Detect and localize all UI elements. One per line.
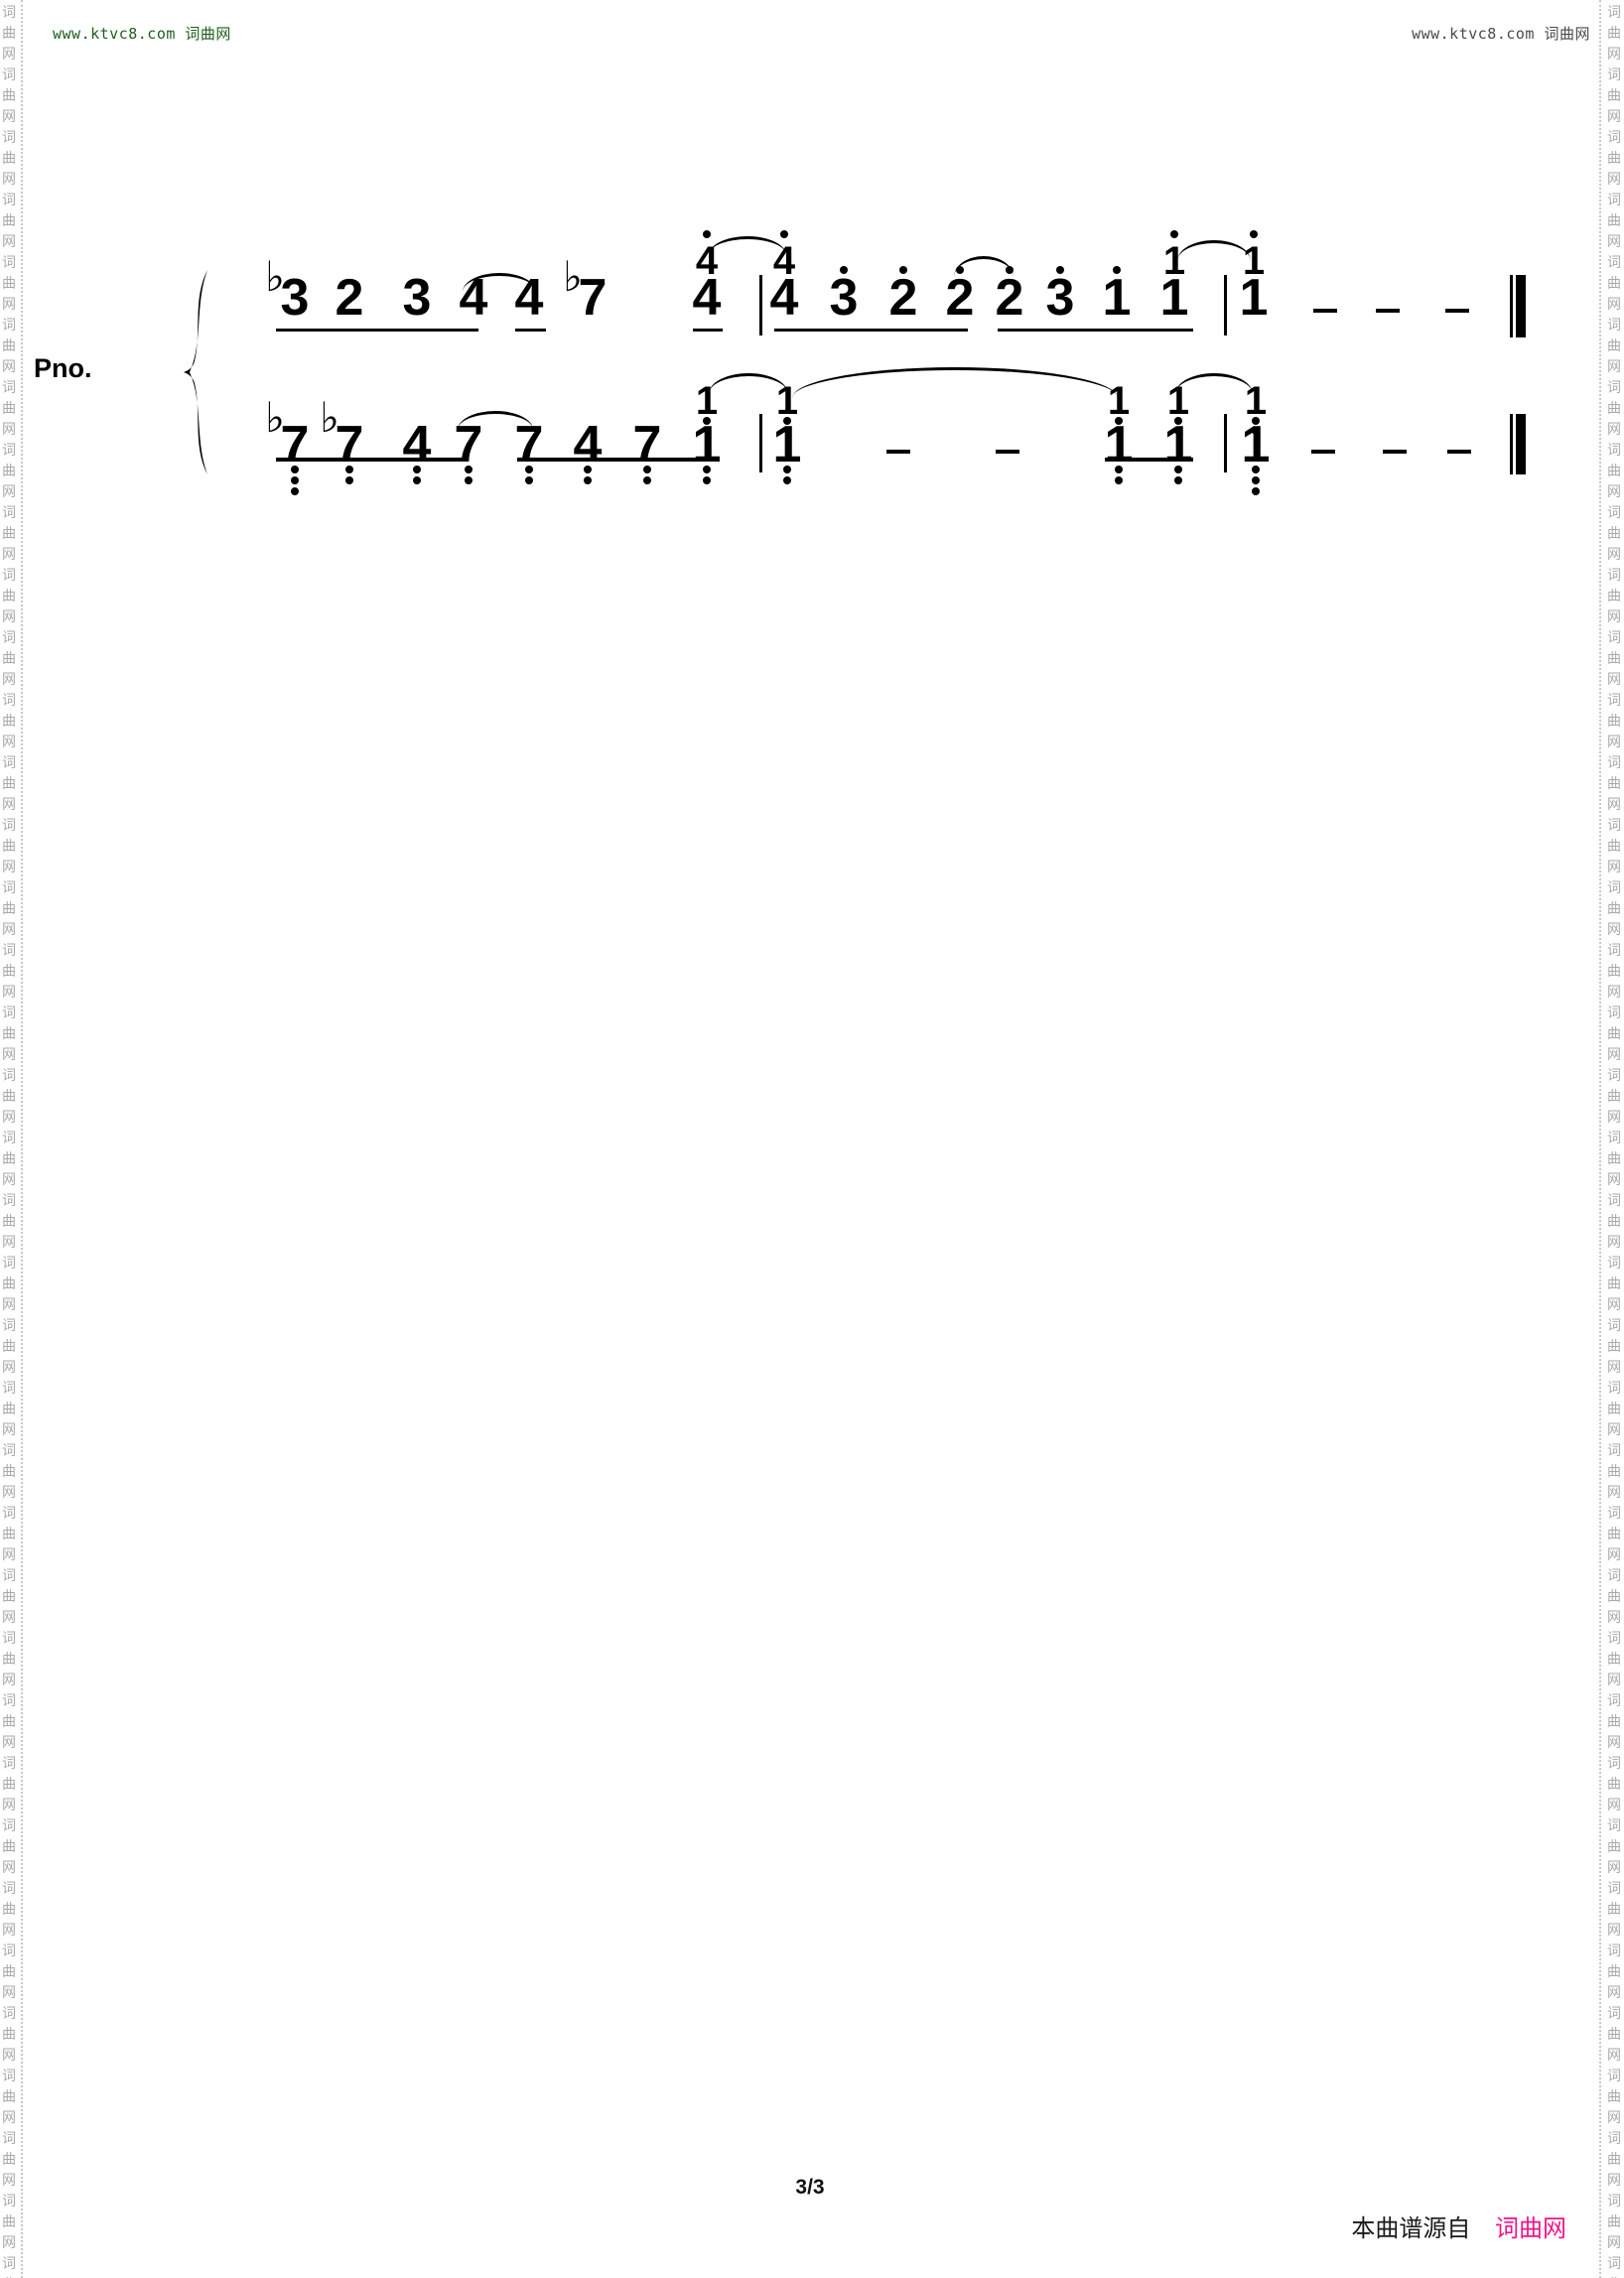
note-number: 1 <box>1237 272 1271 324</box>
octave-dot-low <box>1252 476 1260 484</box>
octave-dot-low <box>291 476 299 484</box>
slur <box>709 373 788 394</box>
barline <box>759 414 762 472</box>
octave-dot-low <box>1174 466 1182 473</box>
octave-dot-low <box>643 476 651 484</box>
octave-dot-high <box>703 230 711 238</box>
footer-brand-link[interactable]: 词曲网 <box>1495 2215 1566 2242</box>
note-number: 7 <box>630 419 664 470</box>
flat-sign: ♭ <box>265 397 279 439</box>
note-number: 4 <box>571 419 605 470</box>
note-number: 1 <box>690 419 724 470</box>
footer-source-line: 本曲谱源自 词曲网 <box>1351 2215 1566 2244</box>
page-number: 3/3 <box>754 2175 866 2200</box>
duration-dash <box>1447 450 1471 454</box>
flat-sign: ♭ <box>563 256 577 298</box>
note-number: 2 <box>943 272 977 324</box>
beam-line <box>998 329 1193 332</box>
octave-dot-low <box>1252 466 1260 473</box>
octave-dot-low <box>703 466 711 473</box>
final-barline-thick <box>1516 275 1526 337</box>
notation-layer: 3♭23447♭444432223111117♭7♭47747111111111… <box>0 0 1624 2278</box>
note-number: 1 <box>1239 419 1273 470</box>
octave-dot-low <box>345 466 353 473</box>
octave-dot-low <box>291 466 299 473</box>
note-number: 2 <box>333 272 366 324</box>
octave-dot-low <box>1115 466 1123 473</box>
beam-line <box>693 329 723 332</box>
duration-dash <box>1311 450 1335 454</box>
note-number: 2 <box>993 272 1026 324</box>
note-number: 1 <box>1102 419 1136 470</box>
octave-dot-high <box>899 266 907 274</box>
footer-source-prefix: 本曲谱源自 <box>1351 2215 1470 2242</box>
note-number: 4 <box>767 272 801 324</box>
final-barline-thick <box>1516 414 1526 474</box>
beam-line <box>276 329 478 332</box>
octave-dot-high <box>1170 230 1178 238</box>
note-number: 3 <box>400 272 434 324</box>
slur <box>1175 373 1253 394</box>
octave-dot-low <box>525 466 533 473</box>
beam-line <box>276 458 469 462</box>
barline <box>759 275 762 335</box>
note-number: 1 <box>1161 419 1195 470</box>
octave-dot-low <box>1115 476 1123 484</box>
octave-dot-low <box>465 466 473 473</box>
octave-dot-low <box>413 476 421 484</box>
final-barline-thin <box>1510 414 1513 474</box>
note-number: 4 <box>690 272 724 324</box>
slur <box>954 256 1014 277</box>
octave-dot-low <box>291 487 299 495</box>
octave-dot-low <box>1174 476 1182 484</box>
duration-dash <box>1383 450 1407 454</box>
beam-line <box>517 458 718 462</box>
barline <box>1224 275 1227 335</box>
beam-line <box>774 329 968 332</box>
octave-dot-high <box>1056 266 1064 274</box>
flat-sign: ♭ <box>320 397 334 439</box>
duration-dash <box>996 450 1019 454</box>
octave-dot-low <box>584 476 592 484</box>
beam-line <box>515 329 546 332</box>
final-barline-thin <box>1510 275 1513 337</box>
octave-dot-high <box>840 266 848 274</box>
octave-dot-low <box>783 476 791 484</box>
duration-dash <box>886 450 910 454</box>
octave-dot-low <box>1252 487 1260 495</box>
octave-dot-low <box>643 466 651 473</box>
note-number: 1 <box>770 419 804 470</box>
flat-sign: ♭ <box>265 256 279 298</box>
octave-dot-low <box>783 466 791 473</box>
octave-dot-high <box>780 230 788 238</box>
octave-dot-low <box>703 476 711 484</box>
octave-dot-high <box>1113 266 1121 274</box>
note-number: 3 <box>827 272 861 324</box>
octave-dot-low <box>584 466 592 473</box>
note-number: 2 <box>886 272 920 324</box>
slur <box>792 367 1118 398</box>
slur <box>458 411 533 430</box>
note-number: 4 <box>400 419 434 470</box>
octave-dot-high <box>1250 230 1258 238</box>
barline <box>1224 414 1227 472</box>
duration-dash <box>1376 309 1400 313</box>
note-number: 3 <box>1043 272 1077 324</box>
beam-line <box>1105 458 1193 462</box>
duration-dash <box>1445 309 1469 313</box>
octave-dot-low <box>413 466 421 473</box>
duration-dash <box>1313 309 1337 313</box>
note-number: 1 <box>1157 272 1191 324</box>
octave-dot-low <box>525 476 533 484</box>
score-page: 词曲网词曲网词曲网词曲网词曲网词曲网词曲网词曲网词曲网词曲网词曲网词曲网词曲网词… <box>0 0 1624 2278</box>
octave-dot-low <box>465 476 473 484</box>
octave-dot-low <box>345 476 353 484</box>
note-number: 1 <box>1100 272 1134 324</box>
